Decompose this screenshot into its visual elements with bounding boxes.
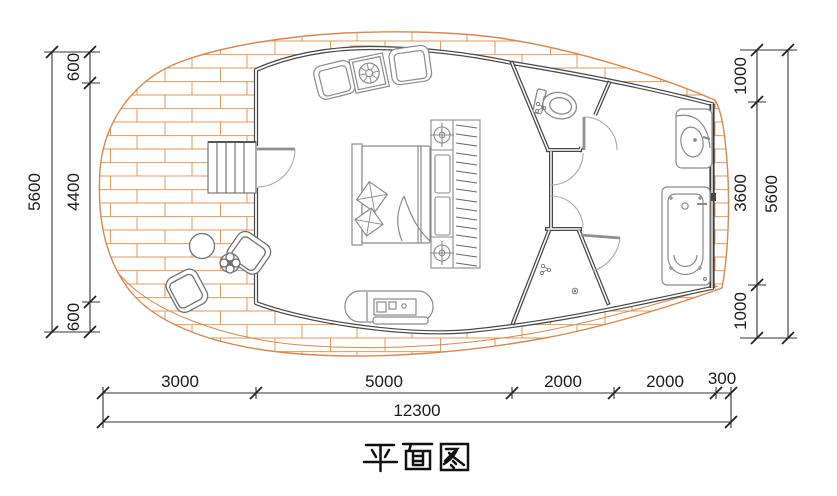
page-title-glyphs	[364, 444, 468, 471]
potted-plant	[220, 253, 240, 273]
dim-bottom-seg-4: 300	[708, 369, 736, 388]
dim-bottom-seg-1: 5000	[365, 372, 403, 391]
dim-right-total: 5600	[762, 175, 781, 213]
dim-bottom-total: 12300	[393, 401, 440, 420]
tv-cabinet	[345, 291, 433, 324]
wardrobe	[430, 120, 480, 268]
stairs	[208, 142, 256, 193]
double-bed	[352, 144, 430, 245]
dim-bottom-seg-0: 3000	[161, 372, 199, 391]
dim-left-seg-1: 4400	[64, 173, 83, 211]
dim-bottom-seg-2: 2000	[544, 372, 582, 391]
dim-right-seg-2: 1000	[731, 292, 750, 330]
dim-right-seg-0: 1000	[731, 57, 750, 95]
outdoor-round-table	[190, 234, 215, 259]
dim-bottom-seg-3: 2000	[646, 372, 684, 391]
dim-left-seg-0: 600	[64, 53, 83, 81]
floor-plan-canvas: 5600 600 4400 600 1000 3600 1000 5600 30…	[0, 0, 837, 496]
dim-left-total: 5600	[25, 173, 44, 211]
side-table	[349, 53, 389, 93]
dim-right-seg-1: 3600	[731, 174, 750, 212]
lounge-armchair	[388, 44, 433, 85]
wash-basin	[676, 109, 712, 168]
floor-plan-page: 5600 600 4400 600 1000 3600 1000 5600 30…	[0, 0, 837, 496]
bathtub	[662, 187, 710, 285]
dim-left-seg-2: 600	[64, 303, 83, 331]
